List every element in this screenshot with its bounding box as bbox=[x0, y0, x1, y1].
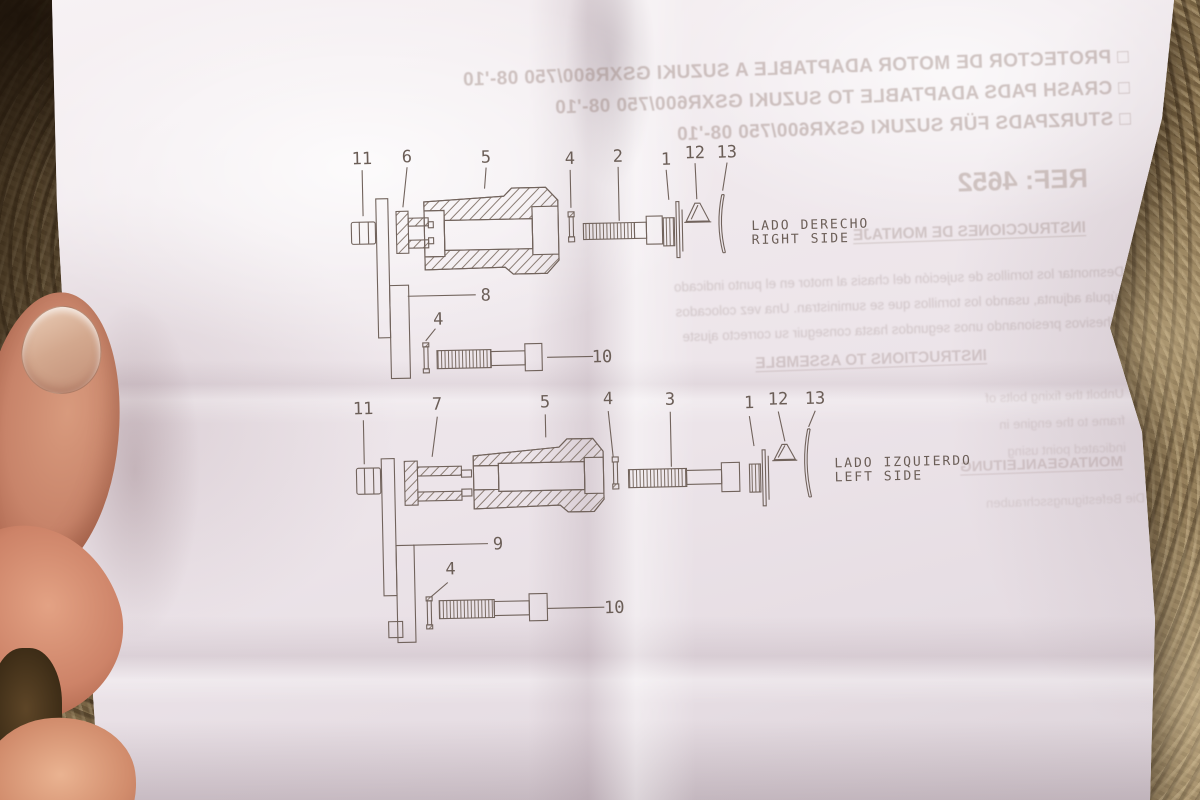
cap-washer bbox=[749, 450, 769, 506]
part-label-5: 5 bbox=[481, 147, 492, 167]
cone-plug bbox=[772, 444, 797, 461]
part-label-11: 11 bbox=[353, 399, 374, 419]
part-label-1: 1 bbox=[661, 150, 672, 170]
crash-pad-slider bbox=[424, 187, 560, 276]
cone-plug bbox=[684, 203, 711, 223]
instruction-sheet-paper: □ PROTECTOR DE MOTOR ADAPTABLE A SUZUKI … bbox=[0, 0, 1200, 800]
bleed-de-line1: Die Befestigungsschrauben bbox=[985, 485, 1146, 516]
part-label-4: 4 bbox=[565, 149, 576, 169]
part-label-11: 11 bbox=[351, 149, 372, 169]
part-label-12: 12 bbox=[684, 143, 705, 163]
part-label-2: 2 bbox=[613, 147, 624, 167]
cap-washer bbox=[663, 201, 683, 257]
part-label-3: 3 bbox=[665, 390, 676, 410]
thin-washer bbox=[568, 212, 575, 242]
spacer-collar bbox=[404, 460, 472, 505]
spacer-collar bbox=[396, 211, 434, 254]
hex-nut bbox=[351, 222, 375, 244]
part-label-4b: 4 bbox=[445, 559, 456, 579]
main-bolt bbox=[583, 216, 663, 246]
part-label-7: 7 bbox=[432, 395, 443, 415]
thin-washer bbox=[612, 457, 619, 489]
part-label-6: 6 bbox=[402, 147, 413, 167]
hex-nut bbox=[356, 468, 381, 494]
paper-sheet-wrap: □ PROTECTOR DE MOTOR ADAPTABLE A SUZUKI … bbox=[0, 0, 1200, 800]
crash-pad-slider bbox=[473, 438, 605, 514]
side-caption-en: RIGHT SIDE bbox=[752, 231, 851, 248]
part-label-5: 5 bbox=[540, 392, 551, 412]
side-caption-en: LEFT SIDE bbox=[835, 469, 924, 486]
part-label-1: 1 bbox=[744, 393, 755, 413]
part-label-4: 4 bbox=[603, 389, 614, 409]
diagram-left-side: 11 7 5 4 3 1 12 13 9 4 10 bbox=[353, 381, 976, 643]
part-label-9: 9 bbox=[493, 534, 504, 554]
part-label-10: 10 bbox=[592, 347, 613, 367]
photo-of-instruction-sheet: □ PROTECTOR DE MOTOR ADAPTABLE A SUZUKI … bbox=[0, 0, 1200, 800]
bleed-paragraph-de: Die Befestigungsschrauben bbox=[985, 485, 1146, 516]
part-label-8: 8 bbox=[480, 286, 491, 306]
thin-disc bbox=[804, 429, 812, 497]
bracket-washer bbox=[423, 343, 430, 373]
part-label-12: 12 bbox=[768, 389, 789, 409]
bracket-washer bbox=[426, 597, 433, 629]
part-label-13: 13 bbox=[716, 142, 737, 162]
bracket-bolt bbox=[439, 593, 548, 622]
bracket-bolt bbox=[437, 343, 543, 372]
diagram-right-side: 11 6 5 4 2 1 12 13 8 4 10 bbox=[350, 138, 873, 380]
part-label-13: 13 bbox=[805, 389, 826, 409]
part-label-4b: 4 bbox=[433, 310, 444, 330]
exploded-assembly-diagrams: 11 6 5 4 2 1 12 13 8 4 10 bbox=[324, 123, 995, 677]
thin-disc bbox=[718, 195, 725, 253]
main-bolt bbox=[628, 462, 740, 493]
part-label-10: 10 bbox=[604, 598, 625, 618]
